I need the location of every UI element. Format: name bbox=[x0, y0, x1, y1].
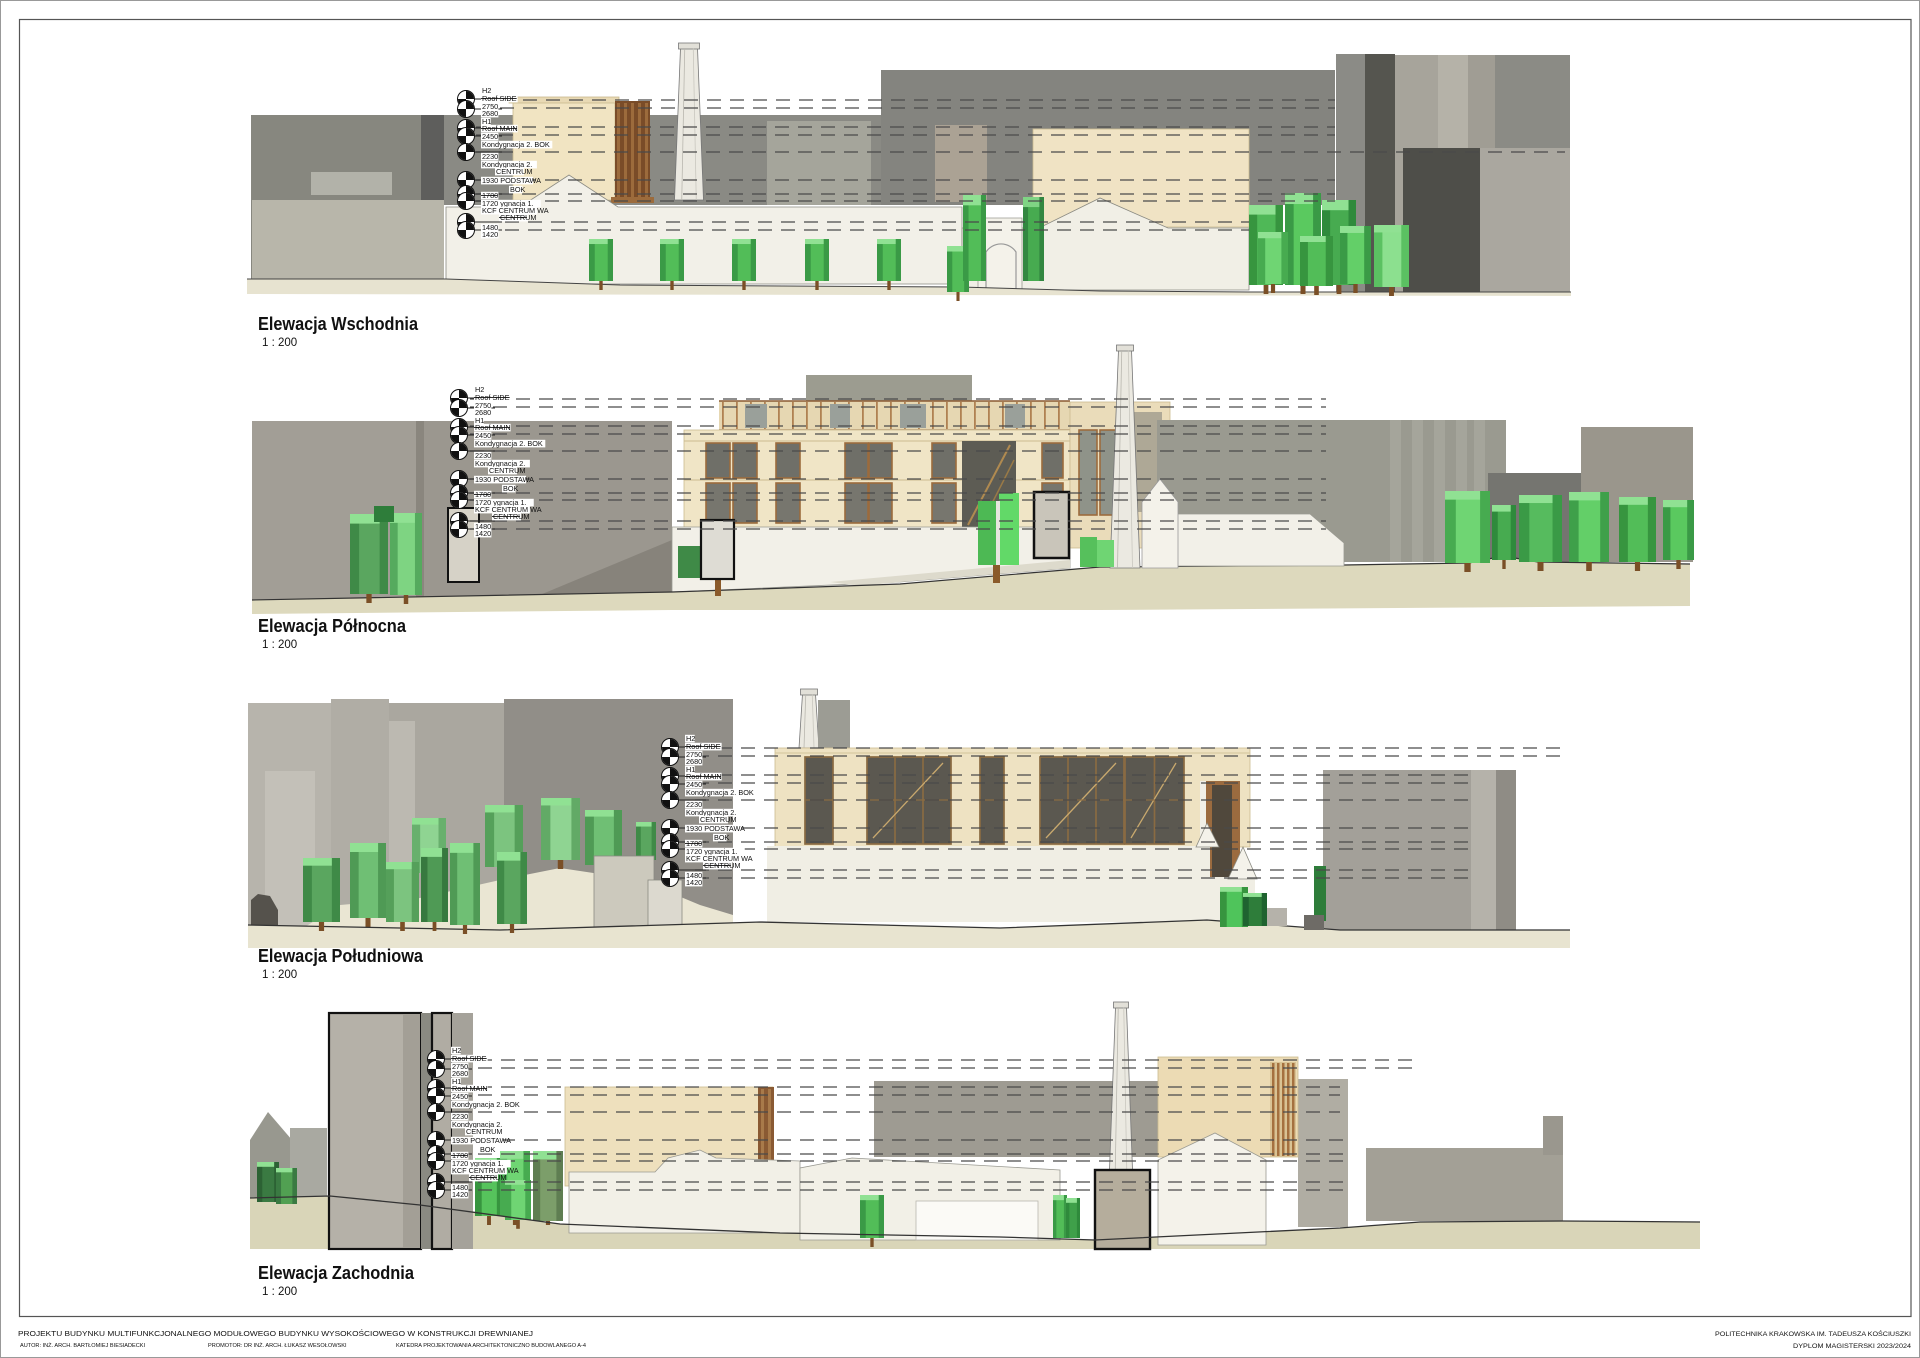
svg-text:1930 PODSTAWA: 1930 PODSTAWA bbox=[686, 824, 745, 833]
svg-text:Kondygnacja 2. BOK: Kondygnacja 2. BOK bbox=[452, 1100, 520, 1109]
svg-text:Elewacja Północna: Elewacja Północna bbox=[258, 615, 407, 636]
svg-text:Elewacja Zachodnia: Elewacja Zachodnia bbox=[258, 1262, 415, 1283]
svg-text:1 : 200: 1 : 200 bbox=[262, 639, 297, 651]
svg-text:1930 PODSTAWA: 1930 PODSTAWA bbox=[482, 176, 541, 185]
svg-text:1420: 1420 bbox=[452, 1190, 468, 1199]
svg-text:BOK: BOK bbox=[714, 833, 730, 842]
svg-text:Kondygnacja 2. BOK: Kondygnacja 2. BOK bbox=[482, 140, 550, 149]
svg-text:BOK: BOK bbox=[480, 1145, 496, 1154]
svg-text:1420: 1420 bbox=[686, 878, 702, 887]
svg-text:POLITECHNIKA KRAKOWSKA IM. TAD: POLITECHNIKA KRAKOWSKA IM. TADEUSZA KOŚC… bbox=[1715, 1329, 1911, 1338]
svg-text:1420: 1420 bbox=[475, 529, 491, 538]
svg-text:Elewacja Południowa: Elewacja Południowa bbox=[258, 945, 424, 966]
svg-text:PROJEKTU BUDYNKU MULTIFUNKCJON: PROJEKTU BUDYNKU MULTIFUNKCJONALNEGO MOD… bbox=[18, 1329, 533, 1338]
svg-text:1 : 200: 1 : 200 bbox=[262, 969, 297, 981]
svg-text:PROMOTOR: DR INŻ. ARCH. ŁUKASZ: PROMOTOR: DR INŻ. ARCH. ŁUKASZ WESOŁOWSK… bbox=[208, 1342, 347, 1349]
svg-text:Kondygnacja 2. BOK: Kondygnacja 2. BOK bbox=[686, 788, 754, 797]
svg-text:CENTRUM: CENTRUM bbox=[700, 815, 736, 824]
svg-text:1930 PODSTAWA: 1930 PODSTAWA bbox=[475, 475, 534, 484]
svg-text:1 : 200: 1 : 200 bbox=[262, 1286, 297, 1298]
svg-text:1 : 200: 1 : 200 bbox=[262, 337, 297, 349]
svg-text:Elewacja Wschodnia: Elewacja Wschodnia bbox=[258, 313, 419, 334]
svg-text:AUTOR: INŻ. ARCH. BARTŁOMIEJ B: AUTOR: INŻ. ARCH. BARTŁOMIEJ BIESIADECKI bbox=[20, 1342, 146, 1349]
svg-text:CENTRUM: CENTRUM bbox=[466, 1127, 502, 1136]
svg-text:KATEDRA PROJEKTOWANIA ARCHITEK: KATEDRA PROJEKTOWANIA ARCHITEKTONICZNO B… bbox=[396, 1343, 586, 1349]
svg-text:DYPLOM MAGISTERSKI 2023/2024: DYPLOM MAGISTERSKI 2023/2024 bbox=[1793, 1343, 1911, 1350]
svg-text:1420: 1420 bbox=[482, 230, 498, 239]
svg-text:1930 PODSTAWA: 1930 PODSTAWA bbox=[452, 1136, 511, 1145]
svg-text:CENTRUM: CENTRUM bbox=[496, 167, 532, 176]
svg-text:BOK: BOK bbox=[510, 185, 526, 194]
svg-text:BOK: BOK bbox=[503, 484, 519, 493]
svg-text:Kondygnacja 2. BOK: Kondygnacja 2. BOK bbox=[475, 439, 543, 448]
svg-text:CENTRUM: CENTRUM bbox=[489, 466, 525, 475]
